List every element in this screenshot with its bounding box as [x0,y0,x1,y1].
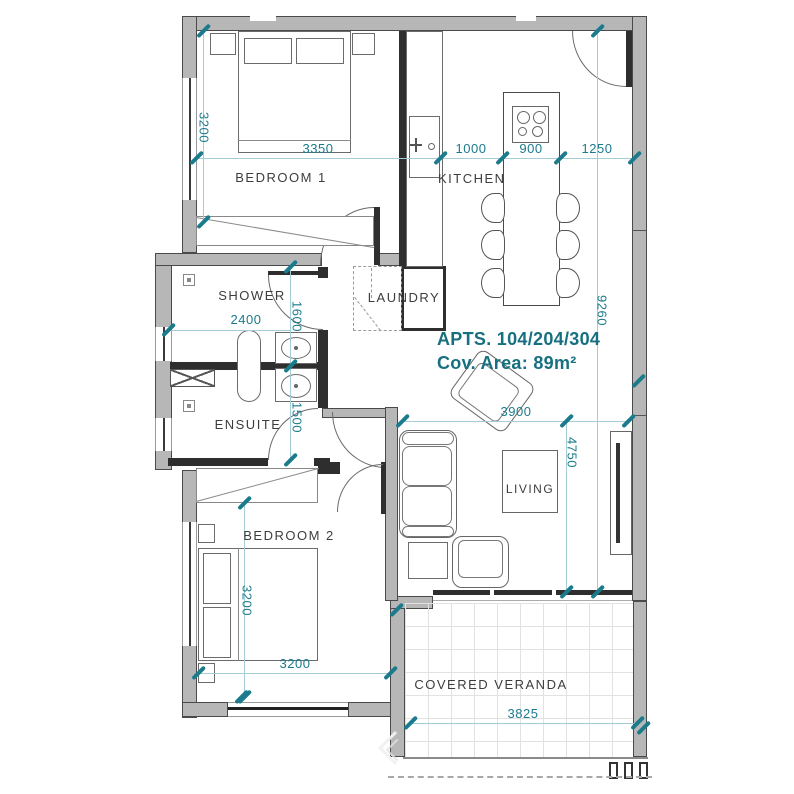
veranda-edge-dashed [388,776,652,778]
sofa-arm [402,432,454,445]
vanity-counter [237,330,261,402]
sill-line [433,600,632,601]
wall-bedroom2-top [318,462,340,474]
burner [532,126,543,137]
tv-unit [610,431,632,555]
shower-drain [183,274,195,286]
nightstand [198,524,215,543]
dim-line [196,673,392,674]
sink-dot [428,143,435,150]
drain-dot [187,404,191,408]
burner [517,111,530,124]
room-label-veranda: COVERED VERANDA [401,677,581,692]
dim-label-living-width: 3900 [486,404,546,419]
window-bedroom2-south [228,702,348,717]
bar-chair [556,230,580,260]
room-label-ensuite: ENSUITE [208,417,288,432]
floor-plan: 3350 1000 900 1250 3200 9260 2400 1600 1… [0,0,794,794]
armchair-cushion [458,540,503,578]
kitchen-sink [409,116,440,178]
bar-chair [481,193,505,223]
wall-notch [516,16,536,21]
wall-ensuite-bottom [168,458,268,466]
dim-label-veranda-width: 3825 [493,706,553,721]
wall-bedroom1-bottom [155,253,322,266]
window-ensuite [155,418,172,451]
dim-line [196,158,634,159]
dim-label-kitchen-left: 1000 [441,141,501,156]
room-label-living: LIVING [498,482,562,496]
burner [533,111,546,124]
room-label-bedroom2: BEDROOM 2 [219,528,359,543]
dim-label-bedroom1-depth: 3200 [197,98,212,158]
side-table [408,542,448,579]
dim-label-shower-width: 2400 [216,312,276,327]
entry-door-leaf [626,31,632,87]
apartment-area: Cov. Area: 89m² [437,353,577,374]
bed2-pillow [203,607,231,658]
ensuite-drain [183,400,195,412]
bar-chair [481,268,505,298]
bar-chair [556,268,580,298]
living-door-arc [332,412,386,468]
nightstand [352,33,375,55]
bed2-pillow [203,553,231,604]
veranda-rail [403,757,648,759]
wardrobe-bedroom1 [196,216,374,246]
wall-joint [632,230,647,231]
wall-bedroom2-bottom [182,702,228,717]
dim-label-bedroom1-width: 3350 [288,141,348,156]
faucet [410,144,422,146]
dim-line [400,421,628,422]
dim-label-island-width: 900 [501,141,561,156]
wall-bedroom1-kitchen [399,31,406,267]
entry-door-arc [572,31,626,87]
window-bedroom1 [182,78,197,200]
sofa-arm [402,526,454,537]
nightstand [210,33,236,55]
basin-dot [294,346,298,350]
dim-label-bedroom2-depth: 3200 [240,571,255,631]
sofa-cushion [402,486,452,526]
room-label-shower: SHOWER [212,288,292,303]
bar-chair [481,230,505,260]
wall-notch [250,16,276,21]
dim-label-ensuite-depth: 1500 [290,388,305,448]
bed1-pillow [296,38,344,64]
duct-shaft [170,369,215,387]
sofa-cushion [402,446,452,486]
sliding-door-living [433,590,632,595]
room-label-laundry: LAUNDRY [364,290,444,305]
dim-label-kitchen-right: 1250 [567,141,627,156]
room-label-bedroom1: BEDROOM 1 [211,170,351,185]
dim-line [168,330,290,331]
bar-chair [556,193,580,223]
burner [518,127,527,136]
sliding-door-gap [490,590,494,595]
window-bedroom2 [182,522,197,646]
dim-label-living-depth: 4750 [565,423,580,483]
room-label-kitchen: KITCHEN [438,171,504,186]
wall-living-left [385,407,398,601]
apartment-title: APTS. 104/204/304 [437,329,600,350]
bed1-pillow [244,38,292,64]
bedroom1-door-leaf [374,207,380,265]
sliding-door-gap [552,590,556,595]
tv-panel [616,443,620,543]
drain-dot [187,278,191,282]
wall-right [632,16,647,601]
dim-line [408,723,640,724]
bedroom2-door-arc [337,464,383,512]
dim-label-bedroom2-width: 3200 [265,656,325,671]
